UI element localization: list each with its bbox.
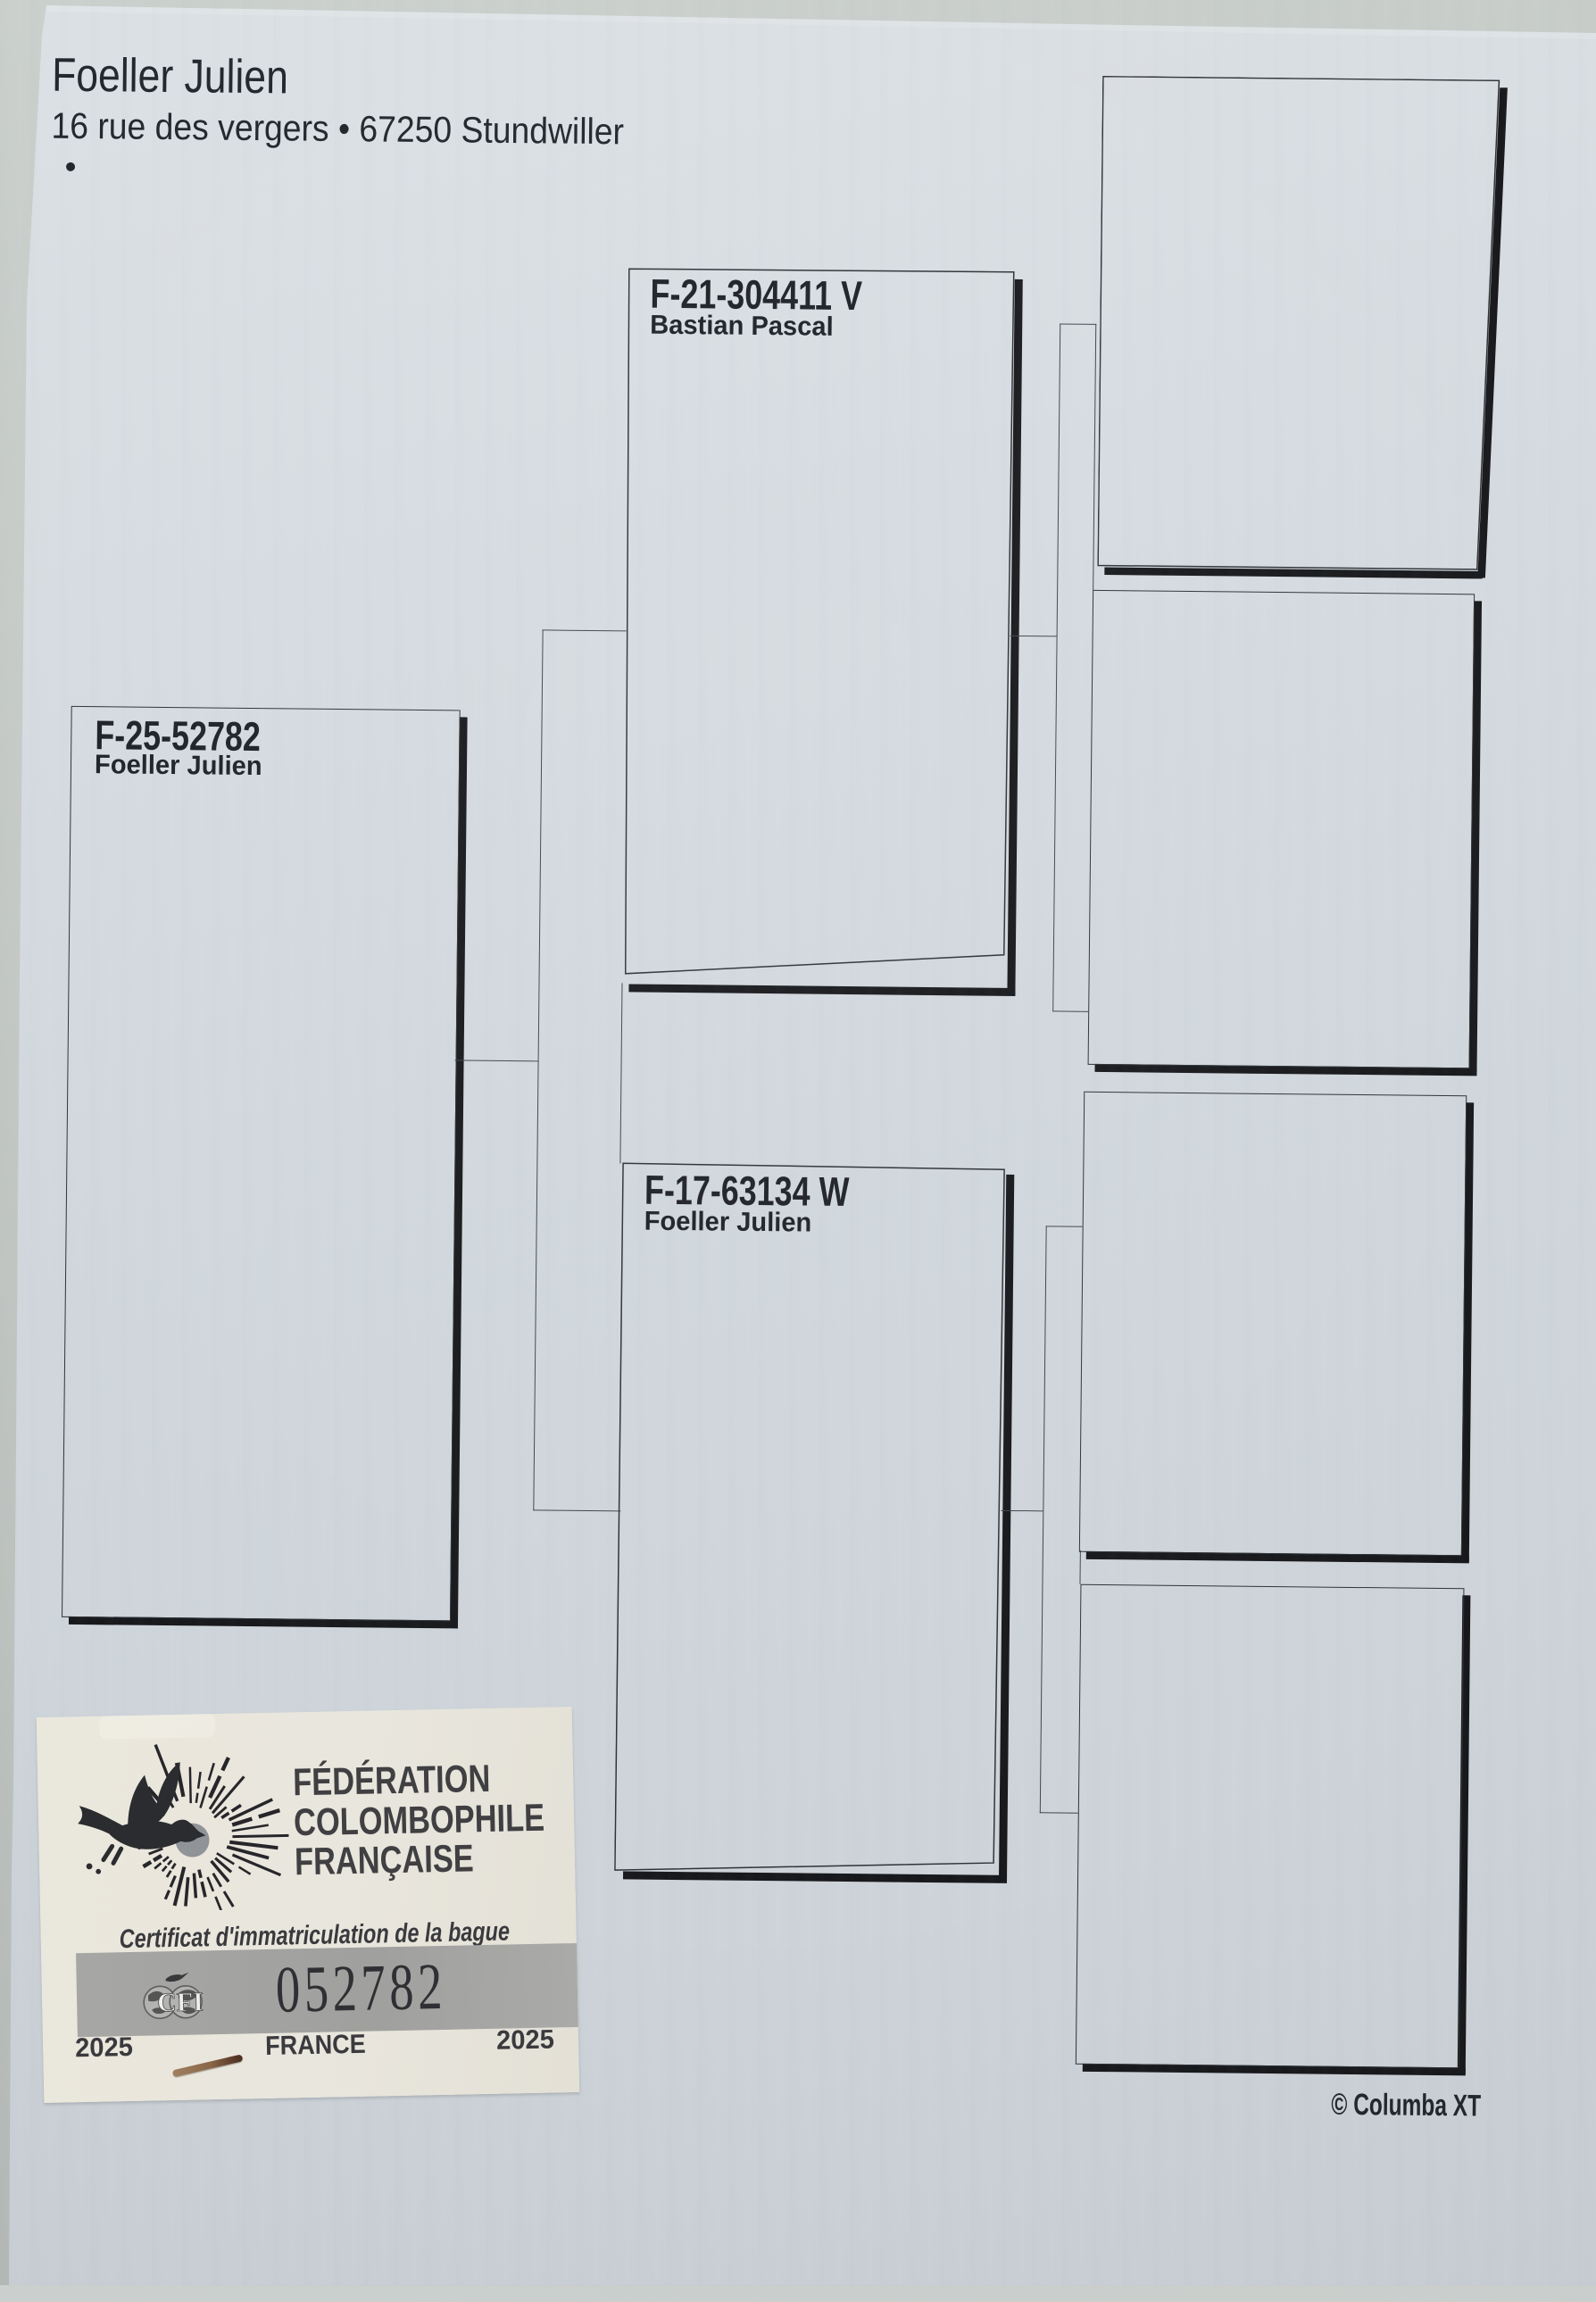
svg-text:CFI: CFI (157, 1987, 204, 2017)
